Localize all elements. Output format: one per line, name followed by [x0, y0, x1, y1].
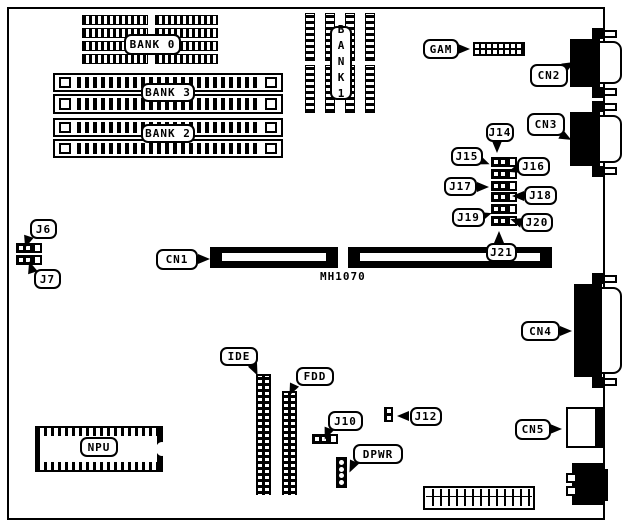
cn1-label: CN1: [156, 249, 198, 270]
motherboard-diagram: BANK 0 BANK 3 BANK 2 BANK1 GAM CN2 CN3: [0, 0, 626, 527]
cn3-tab-base-bottom: [592, 166, 604, 177]
keyboard-connector-jack-2: [566, 486, 577, 496]
cn2-screw-tab-bottom: [603, 88, 617, 96]
keyboard-connector-edge: [603, 469, 608, 501]
npu-label: NPU: [80, 437, 118, 457]
j12-pointer: [397, 411, 409, 421]
j17-pointer: [477, 182, 489, 192]
fdd-label: FDD: [296, 367, 334, 386]
cn4-connector: [574, 284, 602, 377]
j18-pointer: [512, 191, 524, 201]
gam-header: [473, 42, 525, 56]
cn2-tab-base-top: [592, 28, 604, 39]
dpwr-label: DPWR: [353, 444, 403, 464]
bank3-label: BANK 3: [141, 83, 195, 102]
cn2-label: CN2: [530, 64, 568, 87]
cn3-connector: [570, 112, 600, 166]
keyboard-connector-jack-1: [566, 473, 577, 483]
cn3-screw-tab-bottom: [603, 167, 617, 175]
cn1-slot-1: [210, 247, 338, 268]
cn5-connector-edge: [595, 407, 605, 448]
bank1-label: BANK1: [330, 26, 352, 100]
j7-label: J7: [34, 269, 61, 289]
cn4-tab-base-bottom: [592, 377, 604, 388]
cn2-dsub-shell: [597, 41, 622, 84]
dpwr-connector: [336, 457, 347, 488]
cn1-pointer: [198, 254, 210, 264]
cn4-dsub-shell: [600, 287, 622, 374]
j20-label: J20: [521, 213, 553, 232]
cn2-tab-base-bottom: [592, 87, 604, 98]
cn3-dsub-shell: [597, 115, 622, 163]
cn5-pointer: [550, 424, 562, 434]
cn3-tab-base-top: [592, 101, 604, 112]
j14-label: J14: [486, 123, 514, 142]
ide-label: IDE: [220, 347, 258, 366]
jumper-row-5: [491, 204, 517, 214]
j17-label: J17: [444, 177, 477, 196]
j10-label: J10: [328, 411, 363, 431]
j19-label: J19: [452, 208, 485, 227]
j21-label: J21: [486, 243, 517, 262]
cn3-screw-tab-top: [603, 103, 617, 111]
j6-label: J6: [30, 219, 57, 239]
j21-pointer: [494, 231, 504, 243]
cn5-label: CN5: [515, 419, 551, 440]
cn4-pointer: [560, 326, 572, 336]
model-silkscreen-text: MH1070: [320, 270, 366, 283]
bank0-label: BANK 0: [124, 34, 181, 55]
j12-jumper: [384, 407, 393, 422]
power-connector: [423, 486, 535, 510]
keyboard-connector: [572, 463, 605, 505]
j14-pointer: [492, 141, 502, 153]
cn3-label: CN3: [527, 113, 565, 136]
cn1-slot-2: [348, 247, 552, 268]
gam-pointer: [458, 44, 470, 54]
bank2-label: BANK 2: [141, 124, 195, 143]
jumper-row-3: [491, 181, 517, 191]
cn4-screw-tab-bottom: [603, 378, 617, 386]
ide-header: [256, 374, 271, 495]
cn2-screw-tab-top: [603, 30, 617, 38]
cn4-tab-base-top: [592, 273, 604, 284]
j15-label: J15: [451, 147, 483, 166]
fdd-header: [282, 391, 297, 495]
j12-label: J12: [410, 407, 442, 426]
j16-label: J16: [517, 157, 550, 176]
j18-label: J18: [524, 186, 557, 205]
cn5-connector: [566, 407, 597, 448]
cn4-screw-tab-top: [603, 275, 617, 283]
gam-label: GAM: [423, 39, 459, 59]
cn4-label: CN4: [521, 321, 560, 341]
